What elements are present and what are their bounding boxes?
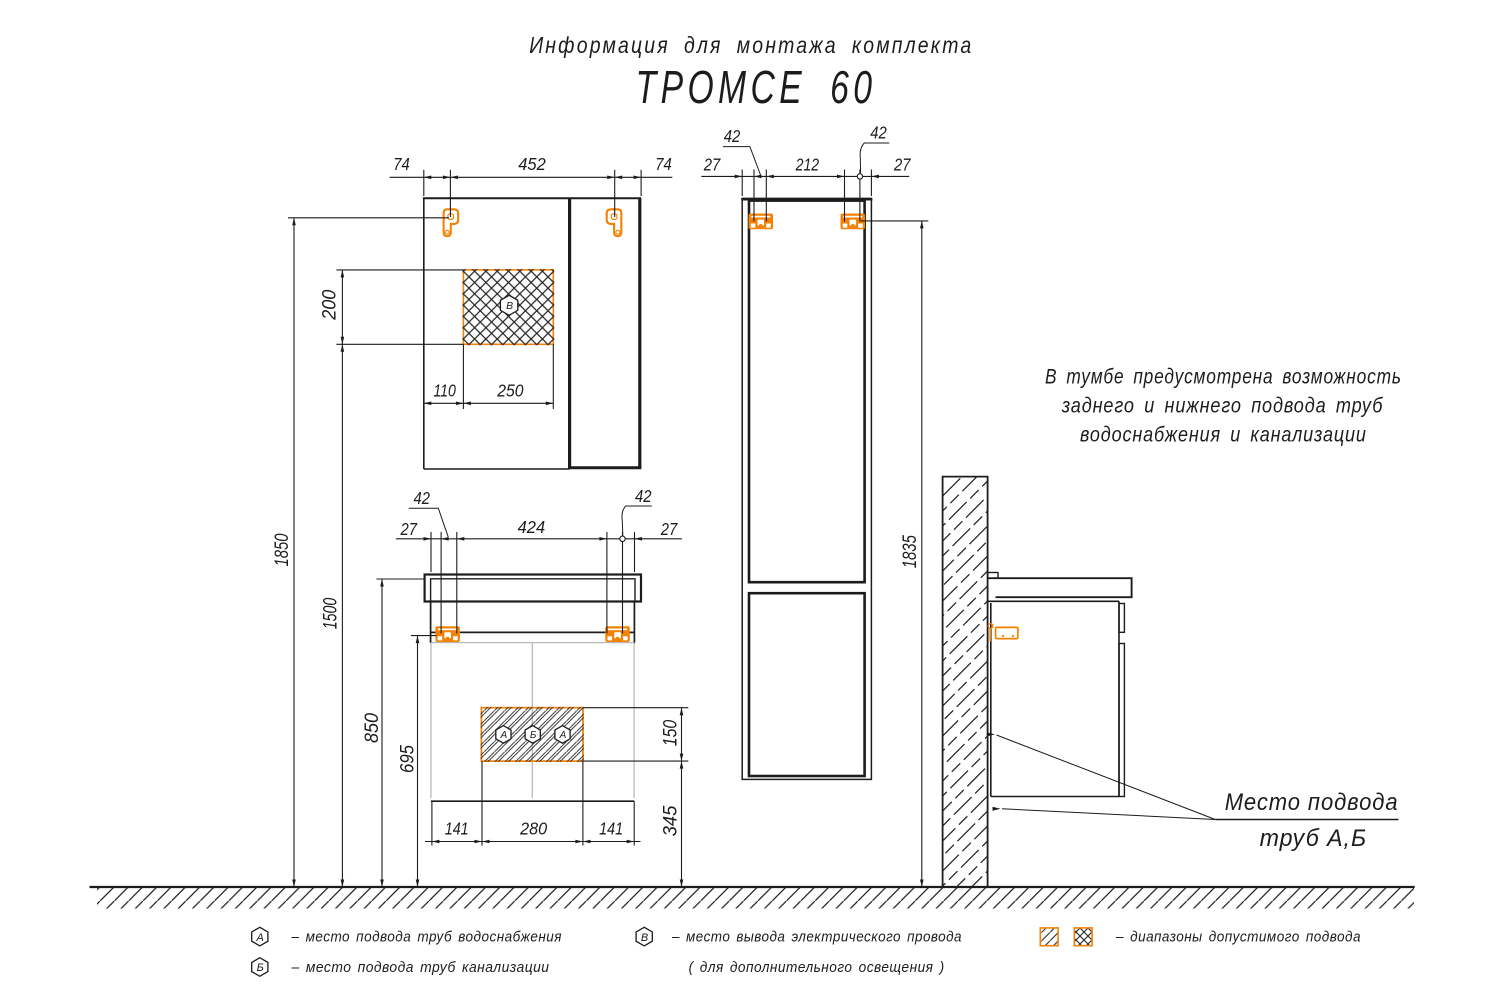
svg-text:27: 27: [893, 155, 911, 175]
svg-text:Информация для монтажа комплек: Информация для монтажа комплекта: [529, 32, 973, 58]
svg-text:– место вывода электрического: – место вывода электрического провода: [671, 930, 962, 946]
svg-text:74: 74: [393, 154, 410, 174]
svg-text:695: 695: [398, 745, 419, 773]
svg-text:водоснабжения и канализации: водоснабжения и канализации: [1080, 423, 1367, 446]
svg-text:А: А: [559, 730, 567, 741]
svg-text:заднего и нижнего подвода труб: заднего и нижнего подвода труб: [1061, 395, 1384, 418]
svg-text:27: 27: [660, 519, 678, 539]
svg-text:– диапазоны допустимого подво: – диапазоны допустимого подвода: [1115, 930, 1361, 946]
svg-text:42: 42: [635, 486, 652, 506]
svg-text:141: 141: [445, 819, 469, 839]
svg-text:В тумбе предусмотрена возможно: В тумбе предусмотрена возможность: [1045, 366, 1402, 389]
svg-text:74: 74: [655, 154, 672, 174]
svg-text:345: 345: [661, 805, 682, 836]
svg-text:452: 452: [518, 154, 546, 174]
svg-text:– место подвода труб канализа: – место подвода труб канализации: [291, 960, 550, 976]
svg-text:ТРОМСЕ 60: ТРОМСЕ 60: [636, 61, 877, 113]
svg-text:1835: 1835: [900, 535, 921, 569]
svg-text:42: 42: [724, 126, 741, 146]
svg-text:Место подвода: Место подвода: [1225, 789, 1399, 816]
svg-text:В: В: [641, 932, 648, 944]
svg-text:1500: 1500: [321, 597, 342, 629]
svg-text:А: А: [499, 730, 507, 741]
svg-text:1850: 1850: [272, 533, 293, 566]
svg-text:– место подвода труб водоснаб: – место подвода труб водоснабжения: [291, 930, 562, 946]
svg-text:Б: Б: [257, 962, 264, 974]
svg-text:труб А,Б: труб А,Б: [1260, 825, 1367, 852]
svg-text:850: 850: [362, 713, 383, 743]
svg-text:Б: Б: [530, 730, 537, 741]
svg-text:А: А: [256, 932, 264, 944]
svg-text:27: 27: [703, 155, 721, 175]
svg-text:280: 280: [519, 819, 547, 839]
svg-text:212: 212: [795, 155, 820, 175]
svg-text:200: 200: [320, 289, 341, 320]
svg-text:В: В: [506, 300, 513, 312]
svg-text:250: 250: [496, 381, 523, 401]
svg-text:150: 150: [661, 719, 682, 746]
svg-text:42: 42: [414, 488, 431, 508]
svg-text:42: 42: [870, 123, 887, 143]
svg-text:141: 141: [599, 819, 623, 839]
svg-text:424: 424: [518, 517, 546, 537]
svg-text:110: 110: [433, 381, 456, 401]
svg-text:27: 27: [400, 519, 418, 539]
svg-text:( для дополнительного освещени: ( для дополнительного освещения ): [689, 960, 945, 976]
